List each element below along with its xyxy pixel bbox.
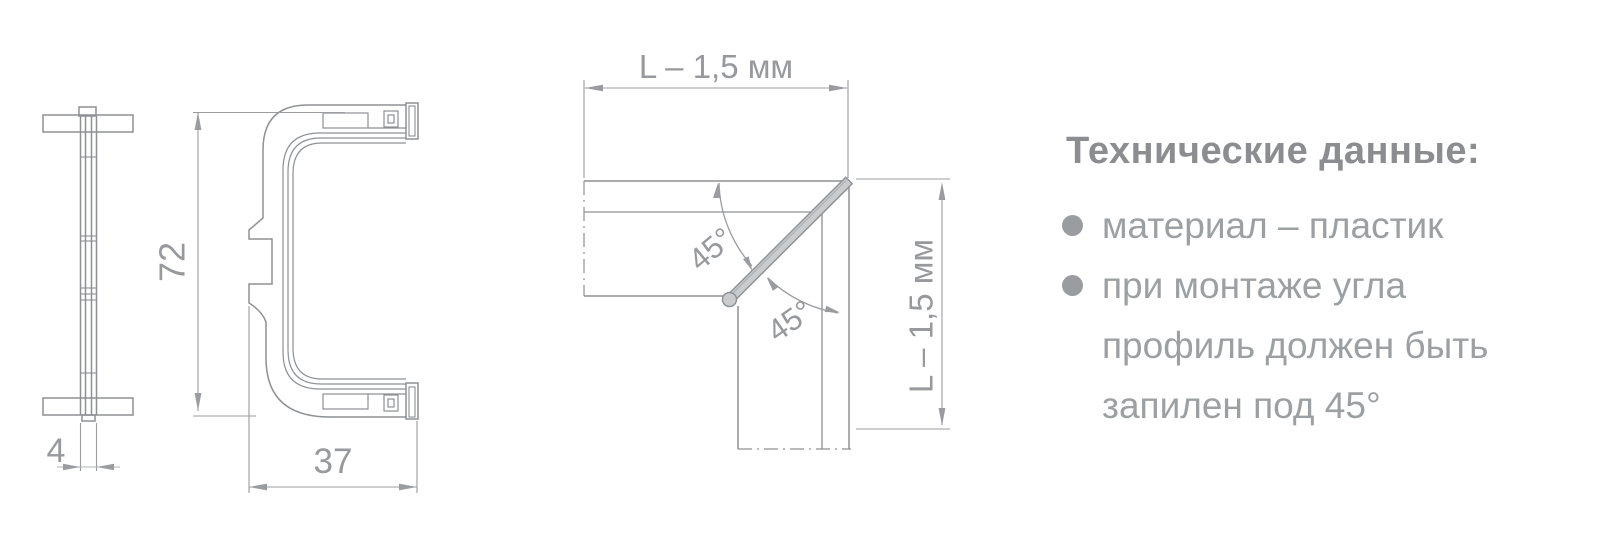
miter-joint-strip: [723, 177, 853, 306]
bullet-icon: [1062, 215, 1083, 236]
side-bottom-flange: [43, 398, 133, 415]
section-height-dimension-label: 72: [152, 242, 193, 282]
bullet-text-line: профиль должен быть: [1102, 316, 1488, 376]
section-width-dimension-label: 37: [314, 442, 353, 481]
bullet-text-line: запилен под 45°: [1102, 376, 1488, 436]
corner-length-top-label: L – 1,5 мм: [639, 48, 793, 85]
side-top-flange: [43, 115, 133, 132]
tech-data-block: Технические данные: материал – пластик п…: [1060, 128, 1560, 436]
bullet-text-line: материал – пластик: [1102, 196, 1443, 256]
tech-bullet-mounting: при монтаже угла профиль должен быть зап…: [1060, 256, 1560, 436]
side-bottom-foot: [82, 415, 95, 421]
side-width-dimension-label: 4: [47, 432, 66, 470]
tech-data-title: Технические данные:: [1066, 128, 1560, 174]
dimension-72: [193, 112, 345, 416]
dimension-length-top: [584, 80, 848, 178]
side-view-drawing: [43, 107, 133, 421]
angle-45-upper-label: 45°: [682, 221, 740, 278]
bullet-text-line: при монтаже угла: [1102, 256, 1488, 316]
corner-length-right-label: L – 1,5 мм: [903, 239, 940, 393]
section-top-end-cap: [406, 103, 418, 139]
technical-drawing-sheet: 4 72: [0, 0, 1605, 552]
dimension-4: [57, 423, 120, 471]
angle-45-lower-label: 45°: [761, 293, 819, 349]
bullet-icon: [1062, 275, 1083, 296]
tech-bullet-material: материал – пластик: [1060, 196, 1560, 256]
section-bottom-end-cap: [406, 383, 418, 419]
section-view-drawing: [249, 103, 418, 419]
